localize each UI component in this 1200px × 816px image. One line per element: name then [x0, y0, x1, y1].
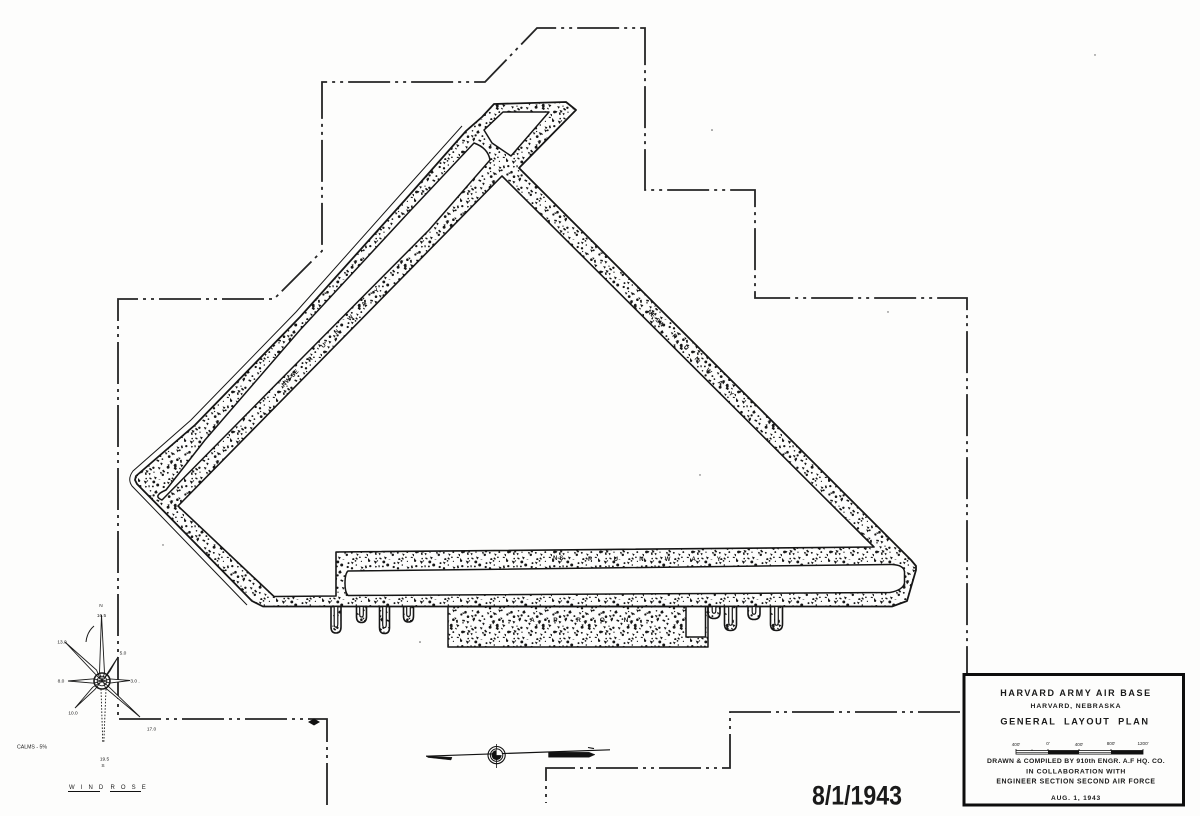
svg-text:W I N D: W I N D: [69, 785, 105, 791]
svg-text:IN COLLABORATION WITH: IN COLLABORATION WITH: [1026, 769, 1126, 776]
svg-text:1200': 1200': [1137, 741, 1148, 746]
svg-text:800': 800': [1107, 741, 1116, 746]
svg-text:0': 0': [1046, 741, 1050, 746]
svg-text:16.5: 16.5: [97, 613, 107, 619]
svg-text:8.0: 8.0: [58, 679, 65, 685]
svg-text:AUG. 1, 1943: AUG. 1, 1943: [1051, 795, 1101, 802]
svg-text:N-S: N-S: [553, 556, 563, 562]
svg-text:19.5: 19.5: [100, 757, 110, 763]
svg-text:3.0 .: 3.0 .: [130, 679, 139, 685]
svg-text:10.0: 10.0: [68, 711, 78, 717]
svg-text:17.0: 17.0: [147, 727, 157, 733]
svg-text:S: S: [101, 763, 104, 769]
svg-text:N: N: [99, 603, 103, 609]
svg-text:ENGINEER SECTION SECOND AIR FO: ENGINEER SECTION SECOND AIR FORCE: [996, 779, 1155, 786]
svg-text:HARVARD ARMY AIR BASE: HARVARD ARMY AIR BASE: [1000, 688, 1151, 698]
svg-text:HARVARD, NEBRASKA: HARVARD, NEBRASKA: [1031, 703, 1122, 710]
svg-text:R U N W A Y: R U N W A Y: [588, 557, 731, 563]
svg-text:400': 400': [1075, 742, 1084, 747]
svg-text:A P R O N: A P R O N: [530, 617, 637, 624]
svg-text:DRAWN & COMPILED BY 910th ENGR: DRAWN & COMPILED BY 910th ENGR. A.F HQ. …: [987, 758, 1165, 765]
svg-text:CALMS - 5%: CALMS - 5%: [17, 745, 47, 751]
svg-text:5.0: 5.0: [120, 651, 127, 657]
svg-text:13.0: 13.0: [57, 640, 67, 646]
svg-text:R O S E: R O S E: [111, 785, 148, 791]
svg-text:GENERAL LAYOUT PLAN: GENERAL LAYOUT PLAN: [1000, 717, 1149, 727]
svg-text:8/1/1943: 8/1/1943: [812, 781, 902, 811]
svg-text:400': 400': [1012, 742, 1021, 747]
